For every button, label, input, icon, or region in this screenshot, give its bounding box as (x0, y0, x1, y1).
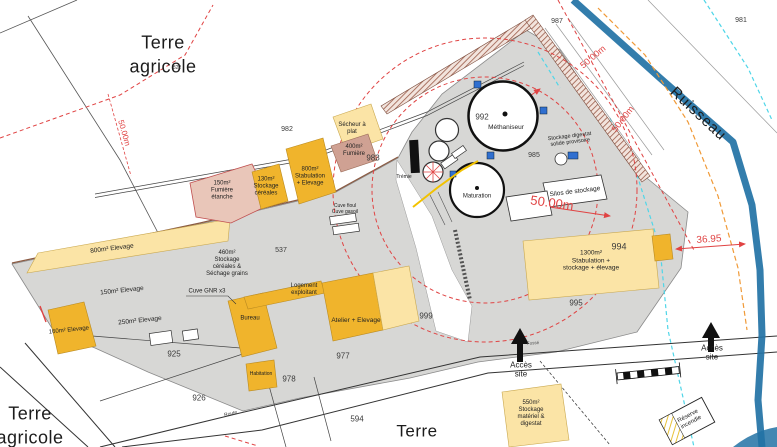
building-stabulation-1300 (523, 229, 659, 300)
methaniseur-tank (469, 82, 538, 151)
maturation-center-dot (475, 186, 479, 190)
field-line-nw-2 (28, 16, 168, 252)
field-line-nw (0, 0, 77, 33)
site-plan: Terre agricole Terre agricole Terre Ruis… (0, 0, 777, 447)
building-fumiere-400 (331, 134, 377, 172)
building-stockage-550 (502, 384, 569, 447)
red-dim-left-line (108, 94, 131, 176)
pond (733, 427, 777, 447)
building-stabulation-800 (286, 138, 336, 204)
parcel-line-ne (648, 0, 777, 133)
flange-3 (487, 152, 494, 159)
blue-equipment (568, 152, 578, 159)
shed-2 (182, 329, 198, 341)
flange-2 (540, 107, 547, 114)
torchere (409, 140, 420, 173)
scale-bar (616, 362, 681, 384)
building-atelier (322, 273, 383, 341)
access-arrow-right (702, 322, 720, 352)
shed-1 (149, 331, 172, 346)
red-dash-s (225, 436, 258, 446)
cyan-utility-line-3 (704, 0, 772, 120)
flange-1 (474, 81, 481, 88)
methaniseur-center-dot (503, 112, 508, 117)
small-tank-e (555, 153, 567, 165)
road-branch-east-edge (25, 343, 115, 447)
site-plan-canvas (0, 0, 777, 447)
process-tank-1 (436, 119, 459, 142)
process-tank-2 (429, 141, 449, 161)
process-tank-3-spokes (423, 162, 443, 182)
road-branch-west-edge (0, 367, 88, 447)
reserve-incendie-box (659, 397, 715, 444)
red-dim-3695-line (676, 244, 745, 249)
building-yellow-east (652, 234, 673, 261)
building-habitation (246, 360, 277, 391)
red-limit-nw (0, 5, 213, 138)
